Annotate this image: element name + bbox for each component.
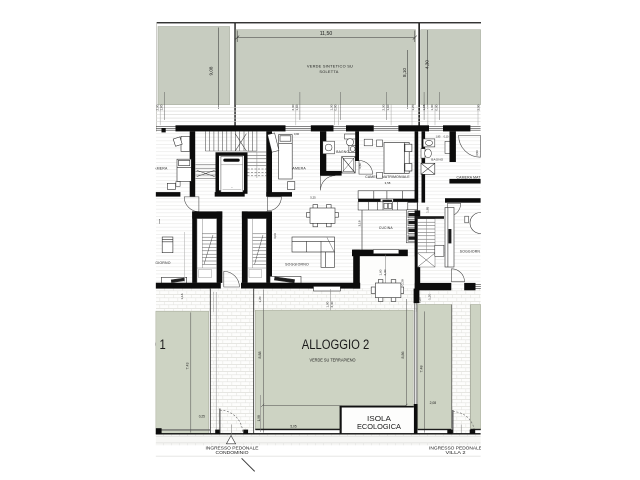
svg-text:1,85: 1,85 — [436, 136, 441, 139]
svg-text:1,20: 1,20 — [411, 104, 415, 110]
svg-text:5,25: 5,25 — [310, 196, 316, 200]
svg-text:4,50: 4,50 — [475, 150, 479, 156]
svg-text:3,58: 3,58 — [385, 181, 391, 185]
svg-text:1,65: 1,65 — [422, 104, 426, 110]
svg-text:4,50: 4,50 — [358, 163, 362, 169]
svg-text:1,60: 1,60 — [159, 104, 163, 110]
svg-text:8,10: 8,10 — [402, 68, 407, 77]
svg-text:8,86: 8,86 — [401, 352, 405, 359]
svg-text:SOGGIORNO: SOGGIORNO — [147, 261, 171, 265]
svg-text:--: -- — [231, 187, 233, 190]
svg-text:4,30: 4,30 — [425, 60, 430, 69]
svg-text:0,90: 0,90 — [294, 132, 300, 136]
svg-text:11,50: 11,50 — [320, 31, 333, 37]
svg-text:0,25: 0,25 — [199, 414, 205, 418]
svg-text:1,16: 1,16 — [180, 293, 184, 299]
svg-text:CAMERA MAT: CAMERA MAT — [457, 175, 481, 179]
svg-text:1,85: 1,85 — [426, 207, 430, 213]
svg-text:SOGGIORN: SOGGIORN — [460, 250, 481, 254]
svg-text:ALLOGGIO 1: ALLOGGIO 1 — [98, 337, 166, 353]
svg-text:7,48: 7,48 — [419, 366, 423, 373]
svg-text:1,30: 1,30 — [430, 104, 434, 110]
svg-text:1,60: 1,60 — [386, 104, 390, 110]
svg-text:5,05: 5,05 — [290, 424, 296, 428]
svg-text:BAGNO: BAGNO — [431, 157, 444, 161]
svg-text:1,20: 1,20 — [418, 297, 422, 303]
svg-text:4,06: 4,06 — [273, 233, 277, 239]
svg-text:0,90: 0,90 — [334, 104, 338, 110]
svg-text:BAGNO: BAGNO — [336, 150, 349, 154]
svg-text:9,08: 9,08 — [209, 66, 214, 75]
svg-text:1,20: 1,20 — [258, 296, 262, 302]
svg-text:CAMERA MATRIMONIALE: CAMERA MATRIMONIALE — [365, 175, 410, 179]
svg-text:ALLOGGIO 2: ALLOGGIO 2 — [302, 337, 370, 353]
svg-text:2,08: 2,08 — [430, 401, 437, 405]
svg-text:SOLETTA: SOLETTA — [319, 69, 338, 74]
svg-text:2,30: 2,30 — [382, 104, 386, 110]
svg-text:2,30: 2,30 — [383, 269, 387, 275]
svg-text:1,60: 1,60 — [295, 104, 299, 110]
svg-text:7,43: 7,43 — [186, 363, 190, 370]
svg-text:0,90: 0,90 — [435, 104, 439, 110]
svg-text:CONDOMINIO: CONDOMINIO — [216, 450, 249, 455]
svg-text:ECOLOGICA: ECOLOGICA — [357, 422, 401, 431]
svg-text:3,18: 3,18 — [357, 220, 361, 226]
svg-text:SOGGIORNO: SOGGIORNO — [285, 263, 309, 267]
svg-text:1,20: 1,20 — [428, 294, 432, 300]
svg-text:]: ] — [159, 219, 160, 224]
svg-text:2,30: 2,30 — [477, 104, 481, 110]
svg-text:CUCINA: CUCINA — [379, 226, 393, 230]
svg-text:VILLA 2: VILLA 2 — [446, 450, 467, 455]
svg-text:0,28: 0,28 — [401, 279, 405, 285]
svg-text:0,10: 0,10 — [444, 136, 449, 139]
svg-text:8,88: 8,88 — [258, 352, 262, 359]
svg-text:VERDE SINTETICO SU: VERDE SINTETICO SU — [307, 63, 353, 68]
svg-text:VERDE SU TERRAPIENO: VERDE SU TERRAPIENO — [310, 358, 357, 363]
svg-text:CAMERA: CAMERA — [151, 166, 168, 170]
